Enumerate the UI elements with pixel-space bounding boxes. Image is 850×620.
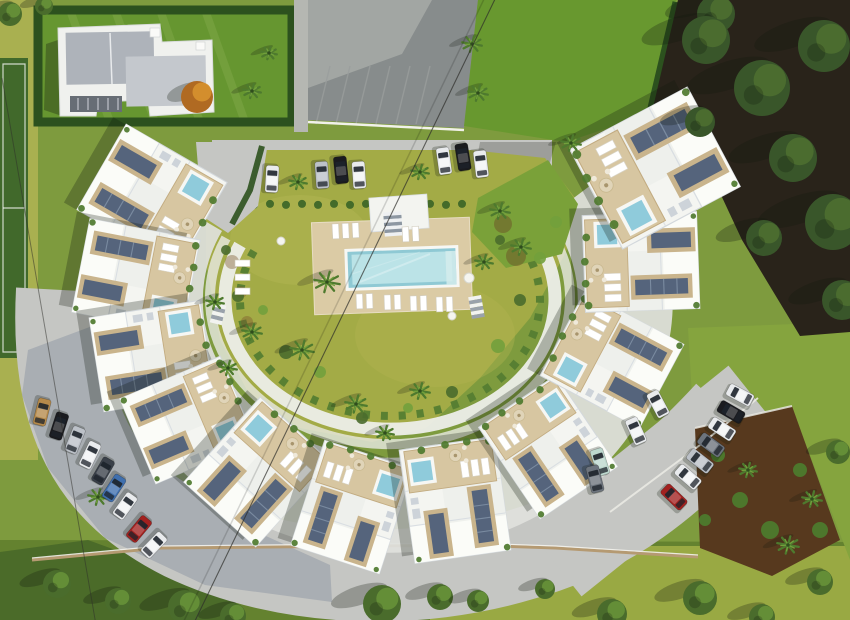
- palm-crown: [810, 497, 814, 501]
- sun-lounger: [384, 295, 391, 310]
- car-rear-window: [317, 181, 327, 187]
- lounger-group: [332, 223, 359, 239]
- tree-shade-spot: [690, 121, 701, 132]
- sun-lounger: [366, 293, 373, 308]
- sun-lounger: [402, 227, 409, 242]
- sun-lounger: [412, 226, 419, 241]
- tree-shade-spot: [539, 588, 546, 595]
- patio-table: [277, 237, 285, 245]
- tree-shade-spot: [471, 600, 479, 608]
- tree-shade-spot: [830, 451, 838, 459]
- sun-lounger: [352, 223, 359, 238]
- tree-shade-spot: [174, 605, 186, 617]
- plunge-pool: [411, 460, 433, 482]
- shrub: [258, 305, 268, 315]
- shrub: [495, 235, 505, 245]
- palm-crown: [569, 141, 573, 145]
- shrub: [446, 386, 458, 398]
- tree-shade-spot: [744, 85, 764, 105]
- site-plan-svg: [0, 0, 850, 620]
- aerial-site-render: [0, 0, 850, 620]
- mulch-plant: [732, 492, 748, 508]
- palm-crown: [418, 389, 422, 393]
- tree-shade-spot: [777, 156, 794, 173]
- creeper-row: [330, 200, 338, 208]
- shrub: [356, 412, 368, 424]
- tree-shade-spot: [829, 298, 843, 312]
- sun-lounger: [332, 224, 339, 239]
- tree-shade-spot: [2, 13, 10, 21]
- skylight-strip: [635, 278, 688, 295]
- palm-crown: [267, 51, 271, 55]
- sun-lounger: [235, 274, 250, 281]
- palm-crown: [418, 170, 422, 174]
- car-roof: [336, 166, 347, 176]
- villa-chimney: [150, 28, 160, 37]
- sun-lounger: [356, 294, 363, 309]
- rooftop-vent: [132, 314, 143, 323]
- shrub: [514, 294, 526, 306]
- car: [329, 154, 349, 186]
- creeper-row: [442, 201, 450, 209]
- sun-lounger: [342, 223, 349, 238]
- entry-mulch: [494, 215, 512, 233]
- car: [469, 148, 490, 180]
- tree-shade-spot: [690, 38, 707, 55]
- sun-lounger: [410, 296, 417, 311]
- tree-shade-spot: [110, 600, 119, 609]
- palm-crown: [213, 300, 217, 304]
- car-rear-window: [266, 185, 276, 191]
- sun-lounger: [235, 288, 250, 295]
- sun-lounger: [436, 297, 443, 312]
- car-roof: [267, 175, 277, 185]
- mulch-plant: [793, 463, 807, 477]
- pool-step-shelf: [445, 251, 456, 285]
- rooftop-vent: [410, 497, 419, 505]
- skylight-strip: [651, 232, 691, 249]
- skylight-mullion: [677, 278, 678, 293]
- palm-crown: [519, 245, 523, 249]
- palm-crown: [786, 543, 790, 547]
- creeper-row: [266, 200, 274, 208]
- shrub: [403, 403, 413, 413]
- car-roof: [317, 171, 328, 181]
- palm-crown: [383, 431, 387, 435]
- palm-crown: [226, 366, 230, 370]
- palm-crown: [476, 91, 480, 95]
- creeper-row: [346, 201, 354, 209]
- rooftop-vent: [146, 312, 154, 320]
- skylight-mullion: [650, 279, 651, 294]
- sun-lounger: [604, 284, 621, 292]
- orange-tree-highlight: [193, 83, 212, 102]
- patio-table: [448, 312, 456, 320]
- palm-crown: [296, 180, 300, 184]
- car-rear-window: [354, 181, 364, 187]
- palm-crown: [746, 468, 750, 472]
- tree-shade-spot: [689, 596, 701, 608]
- tree-shade-spot: [807, 43, 825, 61]
- palm-crown: [300, 348, 304, 352]
- car-rear-window: [337, 176, 347, 182]
- sun-lounger: [605, 294, 622, 302]
- palm-crown: [250, 89, 254, 93]
- palm-crown: [354, 402, 358, 406]
- shrub: [314, 366, 326, 378]
- mulch-plant: [812, 522, 828, 538]
- shrub: [491, 339, 505, 353]
- sun-lounger: [235, 260, 250, 267]
- palm-crown: [325, 280, 329, 284]
- shrub: [550, 216, 562, 228]
- car: [347, 159, 366, 190]
- car-roof: [354, 171, 365, 181]
- palm-crown: [250, 330, 254, 334]
- tree-shade-spot: [432, 596, 441, 605]
- creeper-row: [458, 200, 466, 208]
- villa-chimney: [196, 42, 205, 50]
- sun-lounger: [420, 295, 427, 310]
- sun-lounger: [394, 294, 401, 309]
- lounger-group: [235, 260, 250, 267]
- patio-table: [464, 273, 474, 283]
- shrub: [534, 252, 546, 264]
- rooftop-vent: [412, 508, 421, 519]
- car: [310, 159, 329, 190]
- tree-shade-spot: [370, 602, 383, 615]
- palm-crown: [96, 495, 100, 499]
- skylight-mullion: [664, 279, 665, 294]
- lounger-group: [235, 288, 250, 295]
- plunge-pool: [168, 312, 190, 334]
- palm-crown: [482, 260, 486, 264]
- shrub: [221, 245, 231, 255]
- tree-shade-spot: [48, 583, 58, 593]
- car-roof: [439, 157, 450, 167]
- tree-shade-spot: [38, 5, 44, 11]
- tree-shade-spot: [752, 236, 765, 249]
- car-roof: [476, 160, 487, 170]
- mulch-plant: [761, 521, 779, 539]
- tree-shade-spot: [815, 219, 835, 239]
- tree-shade-spot: [812, 581, 821, 590]
- creeper-row: [314, 201, 322, 209]
- creeper-row: [282, 201, 290, 209]
- car-roof: [458, 153, 469, 163]
- mulch-plant: [699, 514, 711, 526]
- sun-lounger: [446, 296, 453, 311]
- lounger-group: [235, 274, 250, 281]
- creeper-row: [298, 200, 306, 208]
- car: [261, 163, 280, 194]
- palm-crown: [498, 209, 502, 213]
- side-path: [294, 0, 308, 132]
